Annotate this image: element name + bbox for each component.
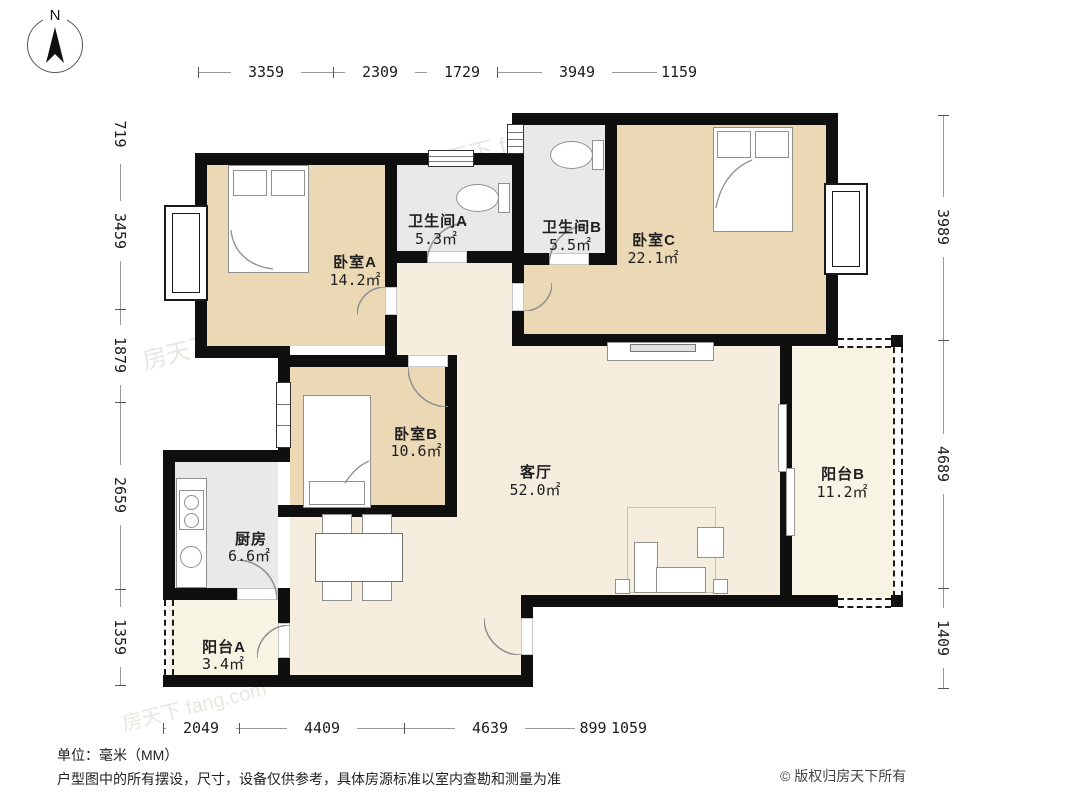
dim-tick [239,723,240,734]
pillow [233,170,267,196]
door-swing-arc [357,287,385,315]
dim-label-bottom: 4639 [455,720,525,736]
dim-tick [938,688,949,689]
wall [512,113,838,125]
room-area-bedroom-b: 10.6㎡ [351,440,481,461]
door-swing-arc [484,618,521,655]
dim-label-left: 1359 [112,607,128,667]
dining-chair [322,581,352,601]
window-mullion [429,156,473,157]
window-mullion [429,161,473,162]
dim-tick [115,309,126,310]
window-mullion [277,425,290,426]
dim-tick [938,340,949,341]
window-mullion [508,146,523,147]
compass: N [20,5,95,80]
tv [630,344,696,352]
balcony-b-open-edge [838,346,891,348]
room-area-bathroom-a: 5.3㎡ [371,228,501,249]
window [276,382,291,448]
dim-tick [938,115,949,116]
wall [163,450,290,462]
wall [521,595,838,607]
unit-note: 单位：毫米（MM） [57,745,178,765]
window-mullion [508,139,523,140]
dim-tick [163,723,164,734]
dim-label-top: 2309 [345,64,415,80]
armchair [697,527,724,558]
dining-chair [322,514,352,534]
room-area-balcony-b: 11.2㎡ [777,481,907,502]
window-mullion [508,132,523,133]
toilet-tank [592,140,604,170]
dim-label-right: 3989 [935,197,951,257]
wall [195,346,290,358]
dim-label-top: 3949 [542,64,612,80]
door [385,287,397,315]
room-area-balcony-a: 3.4㎡ [158,653,288,674]
blanket-fold [343,459,371,485]
pillow [755,131,789,158]
disclaimer: 户型图中的所有摆设，尺寸，设备仅供参考，具体房源标准以室内查勘和测量为准 [57,769,561,789]
dim-label-right: 1409 [935,608,951,668]
dining-chair [362,581,392,601]
window [172,213,200,293]
burner [184,495,199,510]
dim-label-top: 1159 [657,64,701,80]
side-table [615,579,630,594]
dim-label-right: 4689 [935,434,951,494]
copyright: © 版权归房天下所有 [780,766,906,786]
dim-tick [404,723,405,734]
window [507,124,524,154]
door [408,355,448,367]
dim-tick [115,589,126,590]
room-area-bedroom-a: 14.2㎡ [290,269,420,290]
room-area-kitchen: 6.6㎡ [184,545,314,566]
dim-label-bottom: 1059 [608,720,650,736]
floorplan-canvas: N 房天下 fang.com 房天下 fang.com 房天下 fang.com… [0,0,1066,800]
door-swing-arc [408,367,448,407]
burner [184,513,199,528]
room-area-bedroom-c: 22.1㎡ [588,247,718,268]
window [832,191,860,267]
dim-tick [333,67,334,78]
side-table [713,579,728,594]
dim-label-left: 1879 [112,325,128,385]
blanket-fold [229,228,275,271]
dim-tick [497,67,498,78]
window [428,150,474,167]
entry-door [521,618,533,655]
dim-label-top: 1729 [427,64,497,80]
compass-north-label: N [43,7,67,24]
dining-table [315,533,403,582]
sliding-door [778,404,787,472]
sofa [656,567,706,593]
sofa [634,542,658,593]
dim-tick [198,67,199,78]
door-swing-arc [237,560,277,600]
toilet-bowl [456,184,499,212]
dim-label-left: 3459 [112,201,128,261]
dim-label-left: 719 [112,104,128,164]
dim-label-bottom: 899 [575,720,611,736]
door [512,283,524,311]
pillow [717,131,751,158]
dim-label-top: 3359 [231,64,301,80]
wall [163,675,533,687]
toilet-tank [498,183,510,213]
door-swing-arc [524,283,552,311]
north-arrow-icon [43,27,67,67]
pillow [271,170,305,196]
balcony-b-open-edge [838,338,891,340]
wall [163,450,175,600]
dim-label-bottom: 4409 [287,720,357,736]
window-mullion [277,404,290,405]
dim-tick [115,402,126,403]
dim-tick [938,588,949,589]
dining-chair [362,514,392,534]
balcony-b-open-edge [838,606,891,608]
blanket-fold [714,158,754,210]
dim-label-bottom: 2049 [166,720,236,736]
dim-label-left: 2659 [112,465,128,525]
balcony-b-open-edge [838,598,891,600]
toilet-bowl [550,141,593,169]
room-area-living-room: 52.0㎡ [470,479,600,500]
dim-tick [115,685,126,686]
